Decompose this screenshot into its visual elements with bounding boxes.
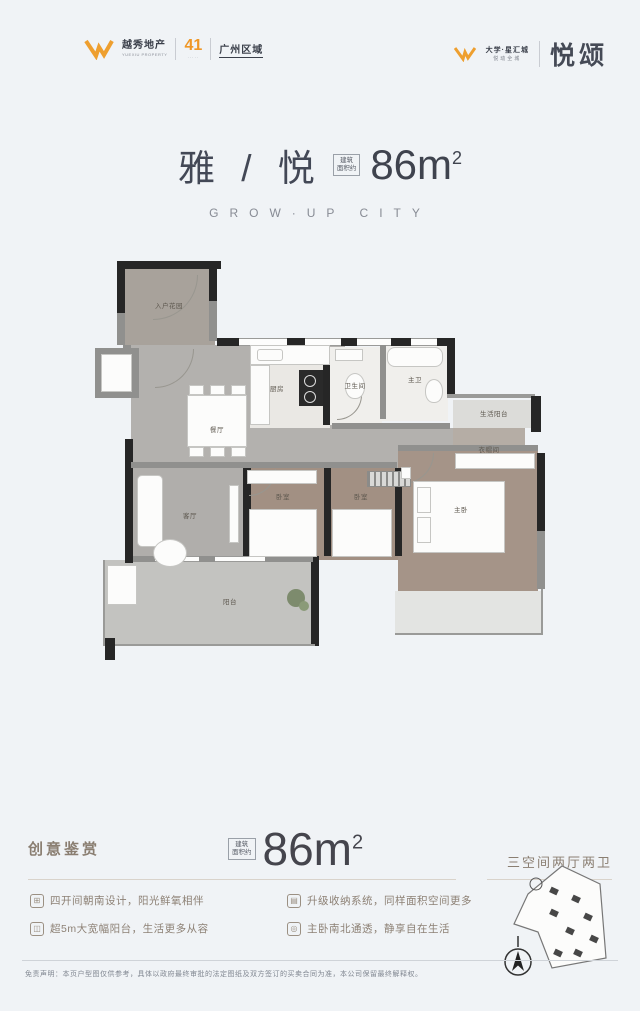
wardrobe — [247, 470, 317, 484]
wall — [209, 261, 217, 301]
room-label-bathroom: 卫生间 — [345, 380, 366, 390]
brand-name: 越秀地产 — [122, 41, 167, 51]
wall — [125, 495, 133, 563]
feature-bullet: ▤ 升级收纳系统，同样面积空间更多 — [287, 893, 472, 908]
kitchen-sink — [257, 349, 283, 361]
unit-area: 86m2 — [370, 144, 462, 186]
north-arrow-icon — [497, 934, 539, 980]
room-label-bedroom-a: 卧室 — [276, 491, 290, 501]
feature-bullet: ⊞ 四开间朝南设计，阳光鲜氧相伴 — [30, 893, 204, 908]
area-prefix-line2: 面积约 — [337, 165, 357, 173]
toilet — [425, 379, 443, 403]
window — [411, 338, 437, 346]
burner — [304, 375, 316, 387]
wall — [117, 313, 125, 345]
room-label-master-bath: 主卫 — [408, 374, 422, 384]
wall — [311, 556, 319, 646]
chair — [210, 447, 225, 457]
chair — [189, 385, 204, 395]
project-name: 大学·星汇城 — [486, 47, 529, 54]
project-title: 悦颂 — [550, 36, 608, 72]
room-label-service-balcony: 生活阳台 — [480, 408, 508, 418]
pillow — [417, 517, 431, 543]
project-subtitle: 悦动全城 — [493, 57, 521, 62]
area-prefix-line1: 建筑 — [337, 157, 357, 165]
brand-text-block: 越秀地产 YUEXIU PROPERTY — [122, 41, 167, 57]
bottom-area-block: 建筑 面积约 86m2 — [228, 826, 363, 872]
room-label-closet: 衣帽间 — [479, 444, 500, 454]
wall — [324, 468, 331, 556]
wall — [395, 633, 543, 635]
header-left-logo-group: 越秀地产 YUEXIU PROPERTY 41 ····· 广州区域 — [84, 38, 263, 60]
room-label-balcony: 阳台 — [223, 596, 237, 606]
feature-text: 超5m大宽幅阳台，生活更多从容 — [50, 921, 209, 936]
area-prefix-line2: 面积约 — [232, 849, 252, 857]
unit-name: 雅 / 悦 — [178, 138, 323, 192]
footer-divider — [22, 960, 618, 961]
wall — [447, 394, 535, 398]
header-divider — [175, 38, 176, 60]
nightstand — [401, 467, 411, 479]
area-prefix-stamp: 建筑 面积约 — [228, 838, 256, 860]
kitchen-counter — [250, 365, 270, 425]
poster-page: 越秀地产 YUEXIU PROPERTY 41 ····· 广州区域 大学·星汇… — [0, 0, 640, 1011]
bath-sink — [335, 349, 363, 361]
wall — [332, 423, 450, 429]
project-logo-icon — [454, 46, 476, 62]
brand-subtitle: YUEXIU PROPERTY — [122, 53, 167, 57]
dining-table — [187, 395, 247, 447]
feature-text: 主卧南北通透，静享自在生活 — [307, 921, 450, 936]
chair — [231, 385, 246, 395]
badge-41-subtitle: ····· — [184, 56, 202, 60]
chair — [210, 385, 225, 395]
room-label-kitchen: 厨房 — [270, 383, 284, 393]
divider-line — [28, 879, 456, 880]
storage-cabinet — [101, 354, 132, 392]
room-label-living: 客厅 — [183, 510, 197, 520]
wall — [447, 338, 455, 396]
header-divider — [210, 38, 211, 60]
wardrobe — [455, 453, 535, 469]
bathtub — [387, 347, 443, 367]
header-divider — [539, 41, 540, 67]
sofa — [137, 475, 163, 547]
area-prefix-stamp: 建筑 面积约 — [333, 154, 361, 176]
wall — [537, 531, 545, 589]
feature-text: 升级收纳系统，同样面积空间更多 — [307, 893, 472, 908]
wall — [209, 301, 217, 341]
wall — [531, 396, 541, 432]
pillow — [417, 487, 431, 513]
plant-icon — [299, 601, 309, 611]
wall — [217, 338, 239, 346]
wall — [105, 638, 115, 660]
chair — [189, 447, 204, 457]
feature-bullet: ◎ 主卧南北通透，静享自在生活 — [287, 921, 450, 936]
wall — [103, 644, 315, 646]
washer — [107, 565, 137, 605]
wall — [341, 338, 357, 346]
section-title: 创意鉴赏 — [28, 838, 100, 859]
header-right-logo-group: 大学·星汇城 悦动全城 悦颂 — [454, 36, 608, 72]
storage-icon: ▤ — [287, 894, 301, 908]
room-label-master-bedroom: 主卧 — [454, 504, 468, 514]
wall — [391, 338, 411, 346]
room-label-entry-garden: 入户花园 — [155, 300, 183, 310]
yuexiu-logo-icon — [84, 38, 114, 60]
bed — [249, 509, 317, 557]
burner — [304, 391, 316, 403]
wall — [117, 261, 221, 269]
wall — [398, 445, 538, 451]
room-floor-master-bay — [395, 591, 543, 635]
tv-cabinet — [229, 485, 239, 543]
room-label-bedroom-b: 卧室 — [354, 491, 368, 501]
wall — [537, 453, 545, 531]
wall — [380, 345, 386, 419]
project-text-block: 大学·星汇城 悦动全城 — [486, 47, 529, 62]
feature-text: 四开间朝南设计，阳光鲜氧相伴 — [50, 893, 204, 908]
room-label-dining: 餐厅 — [210, 424, 224, 434]
wall — [103, 560, 105, 646]
wall — [541, 589, 543, 635]
bottom-area-value: 86m2 — [263, 826, 364, 872]
wall — [131, 462, 397, 468]
bed — [332, 509, 392, 557]
area-prefix-line1: 建筑 — [232, 841, 252, 849]
hero-block: 雅 / 悦 建筑 面积约 86m2 GROW·UP CITY — [0, 138, 640, 220]
floor-plan: 入户花园 餐厅 厨房 卫生间 主卫 生活阳台 衣帽间 客厅 卧室 卧室 主卧 阳… — [95, 253, 550, 658]
lounge-chair — [153, 539, 187, 567]
window-icon: ⊞ — [30, 894, 44, 908]
feature-bullet: ◫ 超5m大宽幅阳台，生活更多从容 — [30, 921, 209, 936]
chair — [231, 447, 246, 457]
airflow-icon: ◎ — [287, 922, 301, 936]
anniversary-badge: 41 ····· — [184, 38, 202, 60]
balcony-icon: ◫ — [30, 922, 44, 936]
region-label: 广州区域 — [219, 41, 263, 58]
badge-41: 41 — [184, 38, 202, 54]
wall — [117, 261, 125, 313]
disclaimer-text: 免责声明：本页户型图仅供参考，具体以政府最终审批的法定图纸及双方签订的买卖合同为… — [25, 969, 423, 979]
hero-subtitle: GROW·UP CITY — [0, 206, 640, 220]
